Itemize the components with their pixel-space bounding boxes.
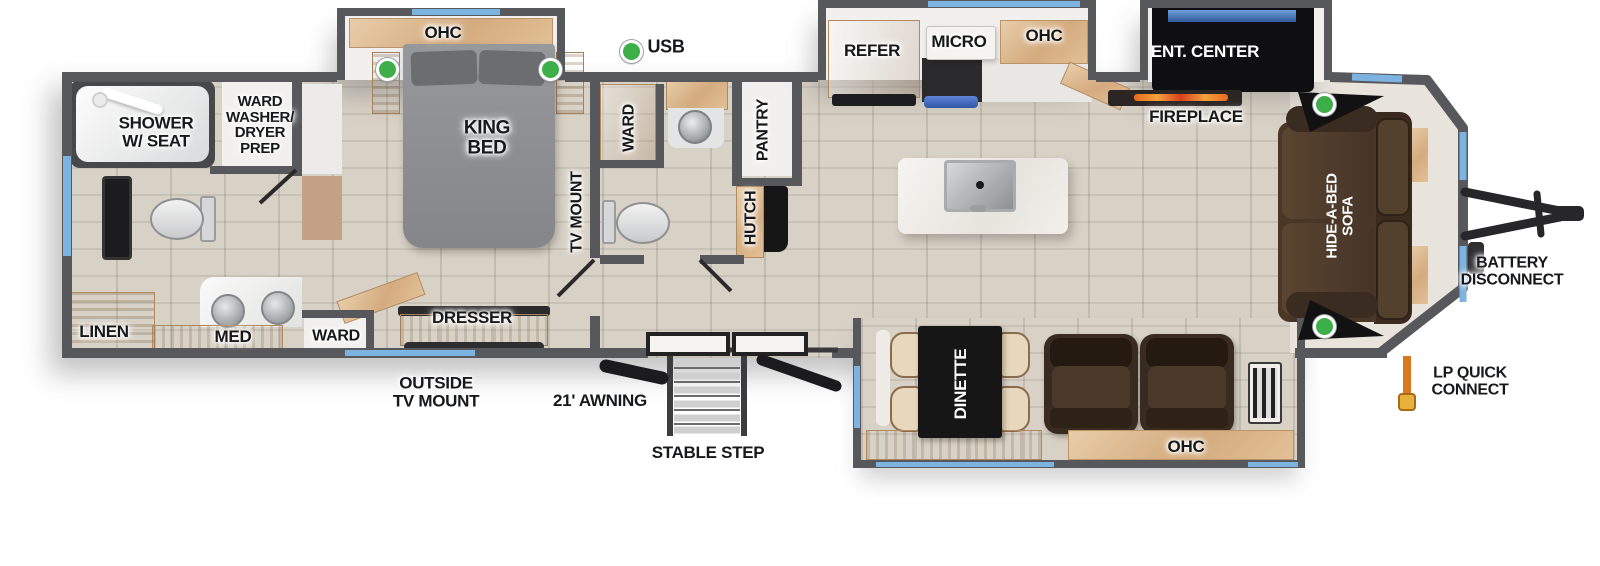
ward-prep-label: WARD WASHER/ DRYER PREP xyxy=(226,94,294,156)
hitch-a-frame xyxy=(1465,192,1560,236)
usb-dot-sofa-bottom xyxy=(1313,315,1336,338)
outside-tv-mount-label: OUTSIDE TV MOUNT xyxy=(393,374,479,409)
kitchen-ohc-label: OHC xyxy=(1026,27,1063,45)
usb-legend-dot xyxy=(620,40,643,63)
micro-label: MICRO xyxy=(931,33,986,51)
entry-mat-left xyxy=(648,334,728,354)
grab-handle-left xyxy=(606,366,662,378)
linen-label: LINEN xyxy=(79,323,129,341)
corner-table-bottom xyxy=(1298,300,1384,340)
hutch-label: HUTCH xyxy=(744,191,761,246)
lp-connector xyxy=(1399,394,1415,410)
shower-label: SHOWER W/ SEAT xyxy=(119,114,194,149)
floorplan-canvas: USB SHOWER W/ SEAT WARD WASHER/ DRYER PR… xyxy=(0,0,1600,566)
pantry-label: PANTRY xyxy=(756,99,773,161)
cap-window-top xyxy=(1352,77,1402,79)
dinette-label: DINETTE xyxy=(952,349,970,420)
bedroom-ohc-label: OHC xyxy=(425,24,462,42)
door-mid-bath xyxy=(700,260,731,291)
entry-mat-right xyxy=(734,334,806,354)
med-label: MED xyxy=(215,328,252,346)
battery-disconnect-label: BATTERY DISCONNECT xyxy=(1461,255,1564,288)
lp-pipe xyxy=(1403,356,1411,398)
lp-quick-connect-label: LP QUICK CONNECT xyxy=(1431,365,1508,398)
corner-table-top xyxy=(1298,92,1384,132)
awning-label: 21' AWNING xyxy=(553,392,647,410)
bedroom-ward-label: WARD xyxy=(312,329,360,346)
ent-center-label: ENT. CENTER xyxy=(1151,43,1259,61)
dresser-label: DRESSER xyxy=(432,309,512,327)
hitch-jack-bar xyxy=(1537,194,1541,234)
usb-dot-bed-left xyxy=(376,58,399,81)
stable-step-label: STABLE STEP xyxy=(652,444,765,462)
refer-label: REFER xyxy=(844,42,900,60)
door-rear-bath xyxy=(260,170,296,203)
door-bedroom xyxy=(558,260,594,296)
tv-mount-label: TV MOUNT xyxy=(570,171,587,252)
grab-handle-right xyxy=(762,360,836,386)
usb-dot-bed-right xyxy=(539,58,562,81)
midbath-ward-label: WARD xyxy=(622,104,639,152)
fireplace-label: FIREPLACE xyxy=(1149,108,1243,126)
overlay-graphics xyxy=(0,0,1600,566)
usb-legend-label: USB xyxy=(647,38,684,57)
bottom-ohc-label: OHC xyxy=(1168,438,1205,456)
usb-dot-sofa-top xyxy=(1313,93,1336,116)
sofa-label: HIDE-A-BED SOFA xyxy=(1324,173,1355,258)
hitch-coupler xyxy=(1552,206,1584,221)
king-bed-label: KING BED xyxy=(464,118,510,158)
